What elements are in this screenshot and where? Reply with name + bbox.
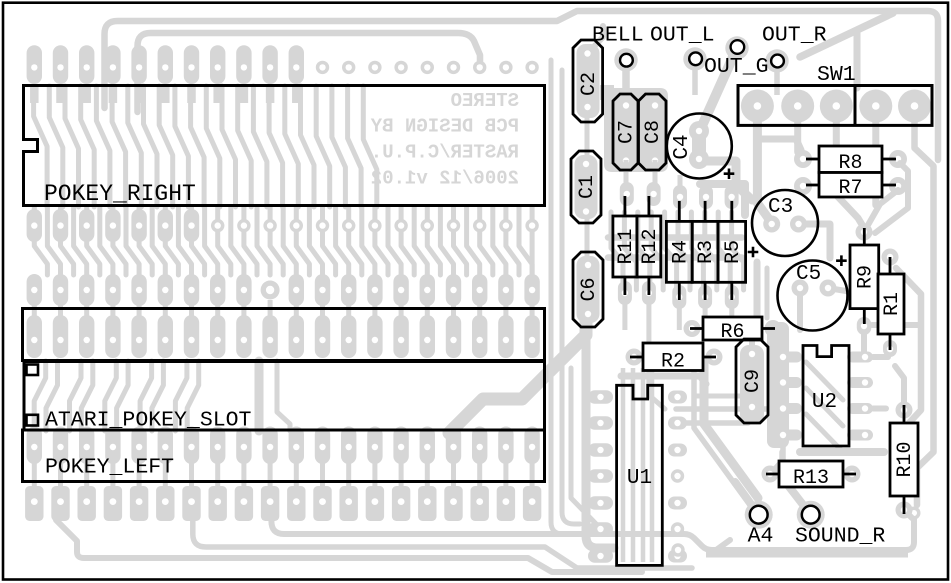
svg-text:C6: C6: [578, 277, 601, 301]
svg-text:R3: R3: [695, 240, 718, 264]
svg-text:R7: R7: [838, 177, 862, 200]
svg-text:U1: U1: [627, 467, 652, 490]
svg-text:SW1: SW1: [817, 63, 856, 87]
svg-text:R13: R13: [793, 467, 829, 490]
svg-text:U2: U2: [812, 391, 837, 414]
svg-text:R11: R11: [615, 228, 638, 264]
svg-text:C7: C7: [616, 120, 639, 144]
svg-text:RASTER/C.P.U.: RASTER/C.P.U.: [371, 142, 519, 164]
svg-text:OUT_L: OUT_L: [650, 24, 715, 48]
svg-text:R4: R4: [669, 240, 692, 264]
svg-text:OUT_G: OUT_G: [704, 55, 769, 79]
svg-text:C2: C2: [578, 72, 601, 96]
svg-text:POKEY_RIGHT: POKEY_RIGHT: [44, 181, 196, 207]
svg-text:R9: R9: [854, 265, 877, 289]
svg-text:OUT_R: OUT_R: [762, 24, 827, 48]
svg-text:C1: C1: [576, 175, 599, 199]
svg-text:C5: C5: [796, 263, 821, 286]
svg-text:R5: R5: [722, 240, 745, 264]
svg-text:SOUND_R: SOUND_R: [795, 525, 885, 549]
svg-text:R10: R10: [894, 441, 917, 477]
svg-text:R1: R1: [881, 292, 904, 316]
svg-text:C4: C4: [671, 134, 694, 159]
svg-text:A4: A4: [748, 525, 774, 549]
svg-text:C3: C3: [768, 196, 793, 219]
svg-text:POKEY_LEFT: POKEY_LEFT: [45, 456, 174, 480]
svg-text:C9: C9: [742, 369, 765, 393]
svg-text:STEREO: STEREO: [451, 90, 519, 112]
svg-text:C8: C8: [642, 120, 665, 144]
svg-text:R12: R12: [639, 228, 662, 264]
svg-text:PCB DESIGN BY: PCB DESIGN BY: [370, 116, 519, 138]
svg-text:2006/12 v1.02: 2006/12 v1.02: [371, 168, 519, 190]
svg-text:R2: R2: [661, 351, 685, 374]
